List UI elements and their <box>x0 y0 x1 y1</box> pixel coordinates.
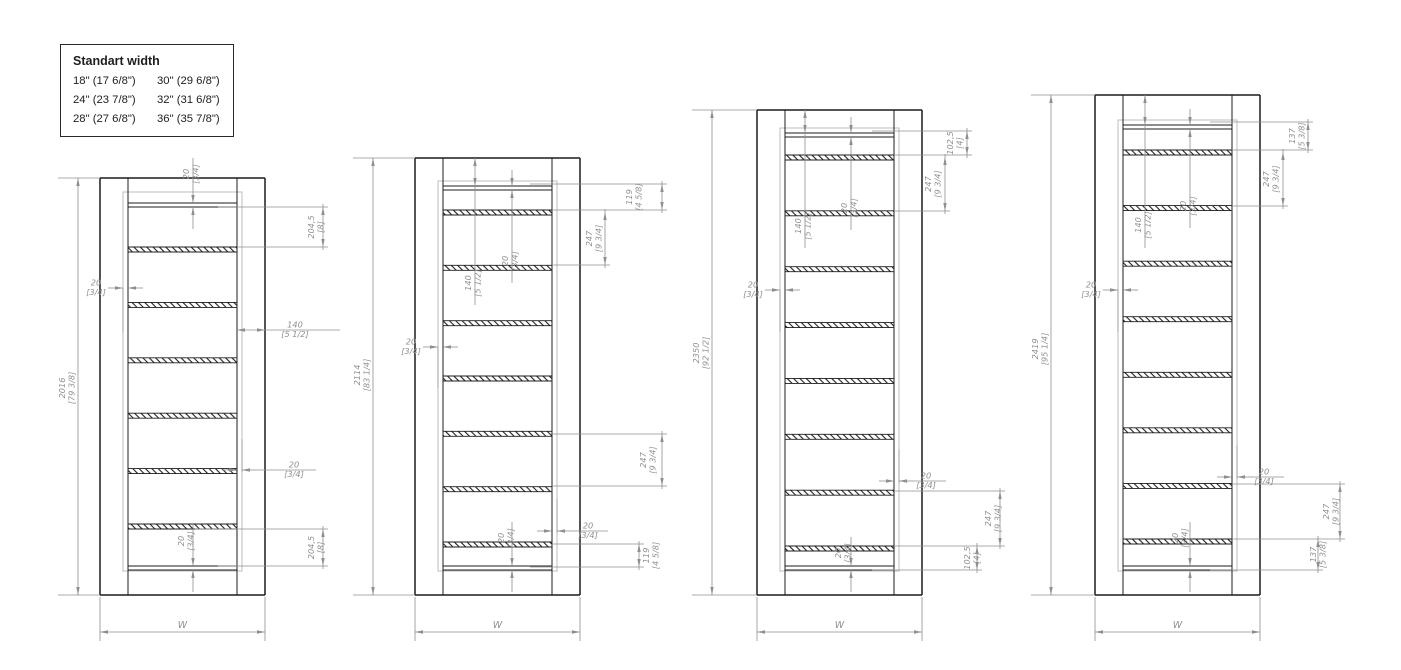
dimension-inches: [3/4] <box>1254 476 1274 486</box>
dimension-arrow <box>785 288 793 291</box>
dimension-label: 247[9 3/4] <box>1261 165 1281 192</box>
dimension-value: 20 <box>1170 533 1180 543</box>
dimension-label: 119[4 5/8] <box>624 183 644 210</box>
door-leaf-outline <box>1118 120 1237 571</box>
dimension-label: 102,5[4] <box>945 131 965 154</box>
dimension-inches: [3/4] <box>186 531 196 551</box>
legend-size-item: 18" (17 6/8") <box>73 75 157 87</box>
legend-size-item: 30" (29 6/8") <box>157 75 221 87</box>
shelf-hatch <box>1123 483 1232 488</box>
dimension-value: 119 <box>641 548 651 564</box>
dimension-inches: [5 1/2] <box>803 212 813 239</box>
dimension-label: 2350[92 1/2] <box>691 337 711 370</box>
dimension-inches: [79 3/8] <box>67 372 77 405</box>
dimension-inches: [4 5/8] <box>634 183 644 210</box>
dimension-inches: [83 1/4] <box>362 359 372 392</box>
dimension-value: 20 <box>1086 280 1096 290</box>
dimension-label: 247[9 3/4] <box>983 505 1003 532</box>
dimension-inches: [3/4] <box>284 469 304 479</box>
shelf-hatch <box>443 265 552 270</box>
legend-size-list: 18" (17 6/8") 30" (29 6/8") 24" (23 7/8"… <box>73 75 221 125</box>
dimension-arrow <box>321 239 324 247</box>
dimension-label: 2419[95 1/4] <box>1030 333 1050 366</box>
shelf-hatch <box>443 376 552 381</box>
dimension-inches: [3/4] <box>191 164 201 184</box>
dimension-inches: [9 3/4] <box>933 170 943 197</box>
dimension-value: 2419 <box>1030 339 1040 360</box>
dimension-arrow <box>1237 475 1245 478</box>
dimension-arrow <box>473 178 476 186</box>
dimension-inches: [8] <box>316 542 326 554</box>
dimension-arrow <box>443 345 451 348</box>
shelf-hatch <box>443 210 552 215</box>
dimension-label: 137[5 3/8] <box>1308 541 1328 568</box>
dimension-value: 102,5 <box>945 131 955 154</box>
dimension-arrow <box>710 587 713 595</box>
dimension-inches: [3/4] <box>849 198 859 218</box>
dimension-inches: [9 3/4] <box>1331 498 1341 525</box>
dimension-arrow <box>914 630 922 633</box>
dimension-label: 140[5 1/2] <box>1133 211 1153 238</box>
shelf-hatch <box>785 323 894 328</box>
dimension-value: 102,5 <box>962 546 972 569</box>
dimension-arrow <box>1123 288 1131 291</box>
dimension-label: 247[9 3/4] <box>638 446 658 473</box>
width-label: W <box>835 620 845 631</box>
dimension-inches: [3/4] <box>743 289 763 299</box>
dimension-inches: [95 1/4] <box>1040 333 1050 366</box>
dimension-value: 247 <box>1321 503 1331 519</box>
dimension-inches: [3/4] <box>843 543 853 563</box>
dimension-inches: [5 1/2] <box>281 329 308 339</box>
dimension-value: 140 <box>793 218 803 234</box>
dimension-arrow <box>510 190 513 198</box>
dimension-label: 137[5 3/8] <box>1287 122 1307 149</box>
dimension-value: 20 <box>748 280 758 290</box>
dimension-arrow <box>191 207 194 215</box>
dimension-inches: [3/4] <box>1081 289 1101 299</box>
dimension-label: 20[3/4] <box>916 471 936 491</box>
dimension-inches: [9 3/4] <box>594 225 604 252</box>
dimension-arrow <box>803 125 806 133</box>
dimension-arrow <box>1095 630 1103 633</box>
dimension-inches: [3/4] <box>401 346 421 356</box>
door-drawing-4: 2419[95 1/4]W140[5 1/2]20[3/4]137[5 3/8]… <box>1030 95 1345 641</box>
dimension-value: 204,5 <box>306 215 316 238</box>
door-leaf-outline <box>780 128 899 571</box>
dimension-value: 119 <box>624 189 634 205</box>
dimension-arrow <box>660 434 663 442</box>
dimension-value: 20 <box>91 278 101 288</box>
dimension-value: 137 <box>1308 546 1318 562</box>
shelf-hatch <box>785 155 894 160</box>
dimension-arrow <box>1110 288 1118 291</box>
dimension-inches: [5 3/8] <box>1318 541 1328 568</box>
dimension-inches: [4 5/8] <box>651 542 661 569</box>
dimension-arrow <box>757 630 765 633</box>
door-drawing-3: 2350[92 1/2]W140[5 1/2]20[3/4]102,5[4]24… <box>691 110 1005 641</box>
dimension-arrow <box>473 158 476 166</box>
dimension-inches: [8] <box>316 221 326 233</box>
dimension-label: 20[3/4] <box>1178 196 1198 216</box>
dimension-arrow <box>803 110 806 118</box>
shelf-hatch <box>128 302 237 307</box>
dimension-arrow <box>371 158 374 166</box>
width-label: W <box>493 620 503 631</box>
dimension-value: 247 <box>638 451 648 467</box>
dimension-inches: [9 3/4] <box>648 446 658 473</box>
dimension-value: 2350 <box>691 343 701 364</box>
legend-size-item: 28" (27 6/8") <box>73 113 157 125</box>
standard-width-legend: Standart width 18" (17 6/8") 30" (29 6/8… <box>60 44 234 137</box>
dimension-value: 20 <box>583 521 593 531</box>
dimension-inches: [3/4] <box>1180 528 1190 548</box>
shelf-hatch <box>1123 261 1232 266</box>
dimension-label: 204,5[8] <box>306 536 326 559</box>
legend-title: Standart width <box>73 54 221 68</box>
dimension-label: 140[5 1/2] <box>281 320 308 340</box>
dimension-value: 247 <box>923 175 933 191</box>
dimension-value: 20 <box>833 548 843 558</box>
dimension-arrow <box>710 110 713 118</box>
dimension-arrow <box>660 202 663 210</box>
dimension-label: 140[5 1/2] <box>793 212 813 239</box>
shelf-hatch <box>443 487 552 492</box>
dimension-value: 20 <box>1178 201 1188 211</box>
shelf-hatch <box>1123 317 1232 322</box>
dimension-arrow <box>1049 587 1052 595</box>
dimension-arrow <box>510 558 513 566</box>
dimension-arrow <box>849 125 852 133</box>
dimension-label: 20[3/4] <box>401 337 421 357</box>
dimension-value: 204,5 <box>306 536 316 559</box>
dimension-arrow <box>1281 198 1284 206</box>
dimension-label: 247[9 3/4] <box>584 225 604 252</box>
dimension-label: 20[3/4] <box>1254 467 1274 487</box>
dimension-label: 247[9 3/4] <box>923 170 943 197</box>
dimension-arrow <box>1224 475 1232 478</box>
dimension-arrow <box>660 478 663 486</box>
dimension-arrow <box>257 328 265 331</box>
dimension-label: 20[3/4] <box>578 521 598 541</box>
dimension-value: 247 <box>1261 170 1271 186</box>
dimension-value: 20 <box>1259 467 1269 477</box>
dimension-label: 20[3/4] <box>284 460 304 480</box>
shelf-hatch <box>128 524 237 529</box>
width-label: W <box>1173 620 1183 631</box>
dimension-arrow <box>943 157 946 165</box>
dimension-inches: [9 3/4] <box>993 505 1003 532</box>
dimension-value: 140 <box>463 275 473 291</box>
dimension-label: 2016[79 3/8] <box>57 372 77 405</box>
dimension-arrow <box>572 630 580 633</box>
dimension-arrow <box>242 468 250 471</box>
dimension-arrow <box>1252 630 1260 633</box>
dimension-arrow <box>430 345 438 348</box>
dimension-arrow <box>1143 117 1146 125</box>
dimension-arrow <box>1188 129 1191 137</box>
shelf-hatch <box>1123 150 1232 155</box>
dimension-arrow <box>544 529 552 532</box>
dimension-value: 2016 <box>57 378 67 399</box>
shelf-hatch <box>128 413 237 418</box>
dimension-arrow <box>100 630 108 633</box>
dimension-inches: [3/4] <box>86 287 106 297</box>
dimension-arrow <box>415 630 423 633</box>
dimension-arrow <box>603 257 606 265</box>
dimension-arrow <box>1281 152 1284 160</box>
dimension-label: 20[3/4] <box>743 280 763 300</box>
dimension-label: 247[9 3/4] <box>1321 498 1341 525</box>
dimension-arrow <box>660 184 663 192</box>
dimension-arrow <box>772 288 780 291</box>
dimension-inches: [3/4] <box>916 480 936 490</box>
dimension-arrow <box>115 286 123 289</box>
dimension-value: 140 <box>287 320 303 330</box>
dimension-arrow <box>191 195 194 203</box>
dimension-arrow <box>76 178 79 186</box>
legend-size-item: 24" (23 7/8") <box>73 94 157 106</box>
dimension-label: 20[3/4] <box>176 531 196 551</box>
dimension-value: 20 <box>406 337 416 347</box>
drawing-sheet: Standart width 18" (17 6/8") 30" (29 6/8… <box>0 0 1401 670</box>
shelf-hatch <box>128 247 237 252</box>
legend-size-item: 36" (35 7/8") <box>157 113 221 125</box>
dimension-arrow <box>1338 484 1341 492</box>
dimension-label: 102,5[4] <box>962 546 982 569</box>
dimension-value: 137 <box>1287 127 1297 143</box>
dimension-label: 20[3/4] <box>181 164 201 184</box>
dimension-arrow <box>899 479 907 482</box>
width-label: W <box>178 620 188 631</box>
dimension-inches: [92 1/2] <box>701 337 711 370</box>
dimension-inches: [3/4] <box>578 530 598 540</box>
dimension-label: 20[3/4] <box>1081 280 1101 300</box>
shelf-hatch <box>785 434 894 439</box>
dimension-arrow <box>128 286 136 289</box>
shelf-hatch <box>785 490 894 495</box>
dimension-value: 20 <box>181 169 191 179</box>
dimension-value: 20 <box>176 536 186 546</box>
dimension-arrow <box>191 558 194 566</box>
dimension-value: 140 <box>1133 217 1143 233</box>
shelf-hatch <box>443 321 552 326</box>
shelf-hatch <box>1123 428 1232 433</box>
dimension-arrow <box>237 328 245 331</box>
dimension-value: 20 <box>500 256 510 266</box>
dimension-arrow <box>321 558 324 566</box>
dimension-value: 2114 <box>352 365 362 386</box>
dimension-arrow <box>998 491 1001 499</box>
dimension-arrow <box>1188 117 1191 125</box>
dimension-value: 247 <box>983 510 993 526</box>
legend-size-item: 32" (31 6/8") <box>157 94 221 106</box>
shelf-hatch <box>785 267 894 272</box>
dimension-arrow <box>998 538 1001 546</box>
dimension-arrow <box>1143 95 1146 103</box>
dimension-inches: [3/4] <box>510 251 520 271</box>
dimension-label: 119[4 5/8] <box>641 542 661 569</box>
dimension-arrow <box>965 131 968 139</box>
dimension-label: 140[5 1/2] <box>463 269 483 296</box>
dimension-label: 204,5[8] <box>306 215 326 238</box>
dimension-inches: [3/4] <box>1188 196 1198 216</box>
dimension-value: 20 <box>289 460 299 470</box>
shelf-hatch <box>128 358 237 363</box>
dimension-arrow <box>371 587 374 595</box>
dimension-arrow <box>321 529 324 537</box>
dimension-arrow <box>849 137 852 145</box>
dimension-arrow <box>1306 142 1309 150</box>
dimension-arrow <box>1306 122 1309 130</box>
dimension-arrow <box>1338 531 1341 539</box>
dimension-inches: [5 1/2] <box>473 269 483 296</box>
dimension-inches: [5 1/2] <box>1143 211 1153 238</box>
dimension-arrow <box>1188 558 1191 566</box>
dimension-arrow <box>257 630 265 633</box>
dimension-value: 20 <box>839 203 849 213</box>
dimension-arrow <box>603 212 606 220</box>
dimension-arrow <box>321 207 324 215</box>
shelf-hatch <box>785 378 894 383</box>
dimension-inches: [5 3/8] <box>1297 122 1307 149</box>
shelf-hatch <box>443 431 552 436</box>
dimension-arrow <box>557 529 565 532</box>
dimension-value: 20 <box>921 471 931 481</box>
dimension-arrow <box>943 203 946 211</box>
dimension-arrow <box>965 147 968 155</box>
shelf-hatch <box>128 469 237 474</box>
dimension-inches: [3/4] <box>506 528 516 548</box>
door-drawing-1: 2016[79 3/8]W20[3/4]204,5[8]20[3/4]140[5… <box>57 158 340 641</box>
dimension-inches: [9 3/4] <box>1271 165 1281 192</box>
dimension-value: 247 <box>584 230 594 246</box>
dimension-label: 2114[83 1/4] <box>352 359 372 392</box>
dimension-arrow <box>510 178 513 186</box>
door-drawing-2: 2114[83 1/4]W140[5 1/2]20[3/4]119[4 5/8]… <box>352 158 667 641</box>
dimension-inches: [4] <box>972 552 982 564</box>
dimension-arrow <box>1049 95 1052 103</box>
dimension-value: 20 <box>496 533 506 543</box>
dimension-label: 20[3/4] <box>86 278 106 298</box>
dimension-inches: [4] <box>955 137 965 149</box>
dimension-arrow <box>886 479 894 482</box>
dimension-arrow <box>76 587 79 595</box>
shelf-hatch <box>1123 372 1232 377</box>
dimension-label: 20[3/4] <box>1170 528 1190 548</box>
